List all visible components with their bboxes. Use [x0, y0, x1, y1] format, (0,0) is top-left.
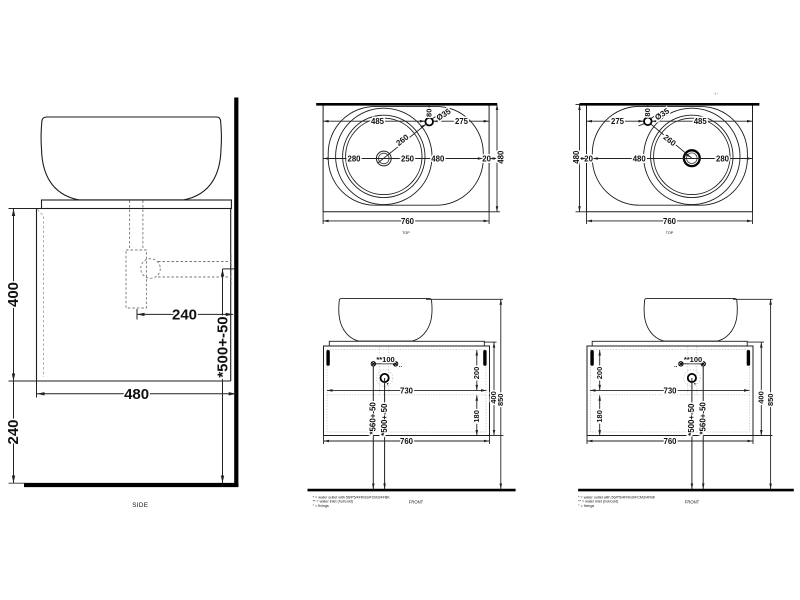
svg-text:..: ..	[399, 363, 403, 369]
svg-text:** = water inlet (hot/cold): ** = water inlet (hot/cold)	[578, 499, 618, 503]
svg-text:*560+-50: *560+-50	[369, 402, 378, 435]
svg-text:3+: 3+	[714, 91, 719, 96]
svg-text:280: 280	[347, 154, 361, 163]
svg-text:730: 730	[663, 386, 677, 395]
svg-text:SIDE: SIDE	[132, 502, 148, 509]
svg-text:730: 730	[400, 386, 414, 395]
svg-text:TOP: TOP	[666, 231, 674, 235]
svg-text:180: 180	[595, 410, 604, 423]
svg-text:**100: **100	[684, 355, 702, 364]
svg-text:200: 200	[472, 367, 481, 380]
svg-text:485: 485	[694, 117, 708, 126]
svg-text:480: 480	[124, 386, 149, 403]
svg-text:*500+-50: *500+-50	[215, 316, 232, 377]
svg-text:80: 80	[424, 109, 433, 117]
svg-text:275: 275	[455, 117, 469, 126]
svg-text:** = water inlet (hot/cold): ** = water inlet (hot/cold)	[313, 499, 353, 503]
svg-text:400: 400	[757, 391, 766, 404]
svg-text:485: 485	[371, 117, 385, 126]
svg-text:480: 480	[572, 150, 581, 164]
svg-text:240: 240	[5, 419, 22, 444]
svg-text:275: 275	[611, 117, 625, 126]
svg-text:760: 760	[401, 217, 415, 226]
svg-text:*500+-50: *500+-50	[687, 403, 696, 436]
svg-text:FRONT: FRONT	[685, 499, 700, 504]
svg-text:**100: **100	[376, 355, 394, 364]
svg-text:200: 200	[595, 367, 604, 380]
svg-text:850: 850	[496, 394, 505, 407]
svg-text:*500+-50: *500+-50	[380, 403, 389, 436]
svg-text:80: 80	[643, 108, 652, 116]
svg-text:TOP: TOP	[402, 231, 410, 235]
svg-text:° = fixings: ° = fixings	[578, 504, 594, 508]
svg-text:° = fixings: ° = fixings	[313, 504, 329, 508]
svg-text:280: 280	[716, 154, 730, 163]
svg-text:480: 480	[496, 150, 505, 164]
svg-text:180: 180	[472, 410, 481, 423]
svg-text:760: 760	[400, 437, 414, 446]
svg-text:250: 250	[401, 155, 415, 164]
svg-text:20: 20	[584, 154, 593, 163]
svg-text:480: 480	[431, 155, 445, 164]
svg-text:..: ..	[674, 363, 678, 369]
svg-text:240: 240	[172, 307, 197, 324]
svg-text:760: 760	[663, 437, 677, 446]
svg-text:FRONT: FRONT	[409, 499, 424, 504]
svg-text:20: 20	[482, 154, 491, 163]
svg-text:480: 480	[633, 155, 647, 164]
svg-text:760: 760	[663, 217, 677, 226]
svg-text:850: 850	[766, 394, 775, 407]
svg-text:*560+-50: *560+-50	[699, 402, 708, 435]
svg-text:400: 400	[5, 282, 22, 307]
